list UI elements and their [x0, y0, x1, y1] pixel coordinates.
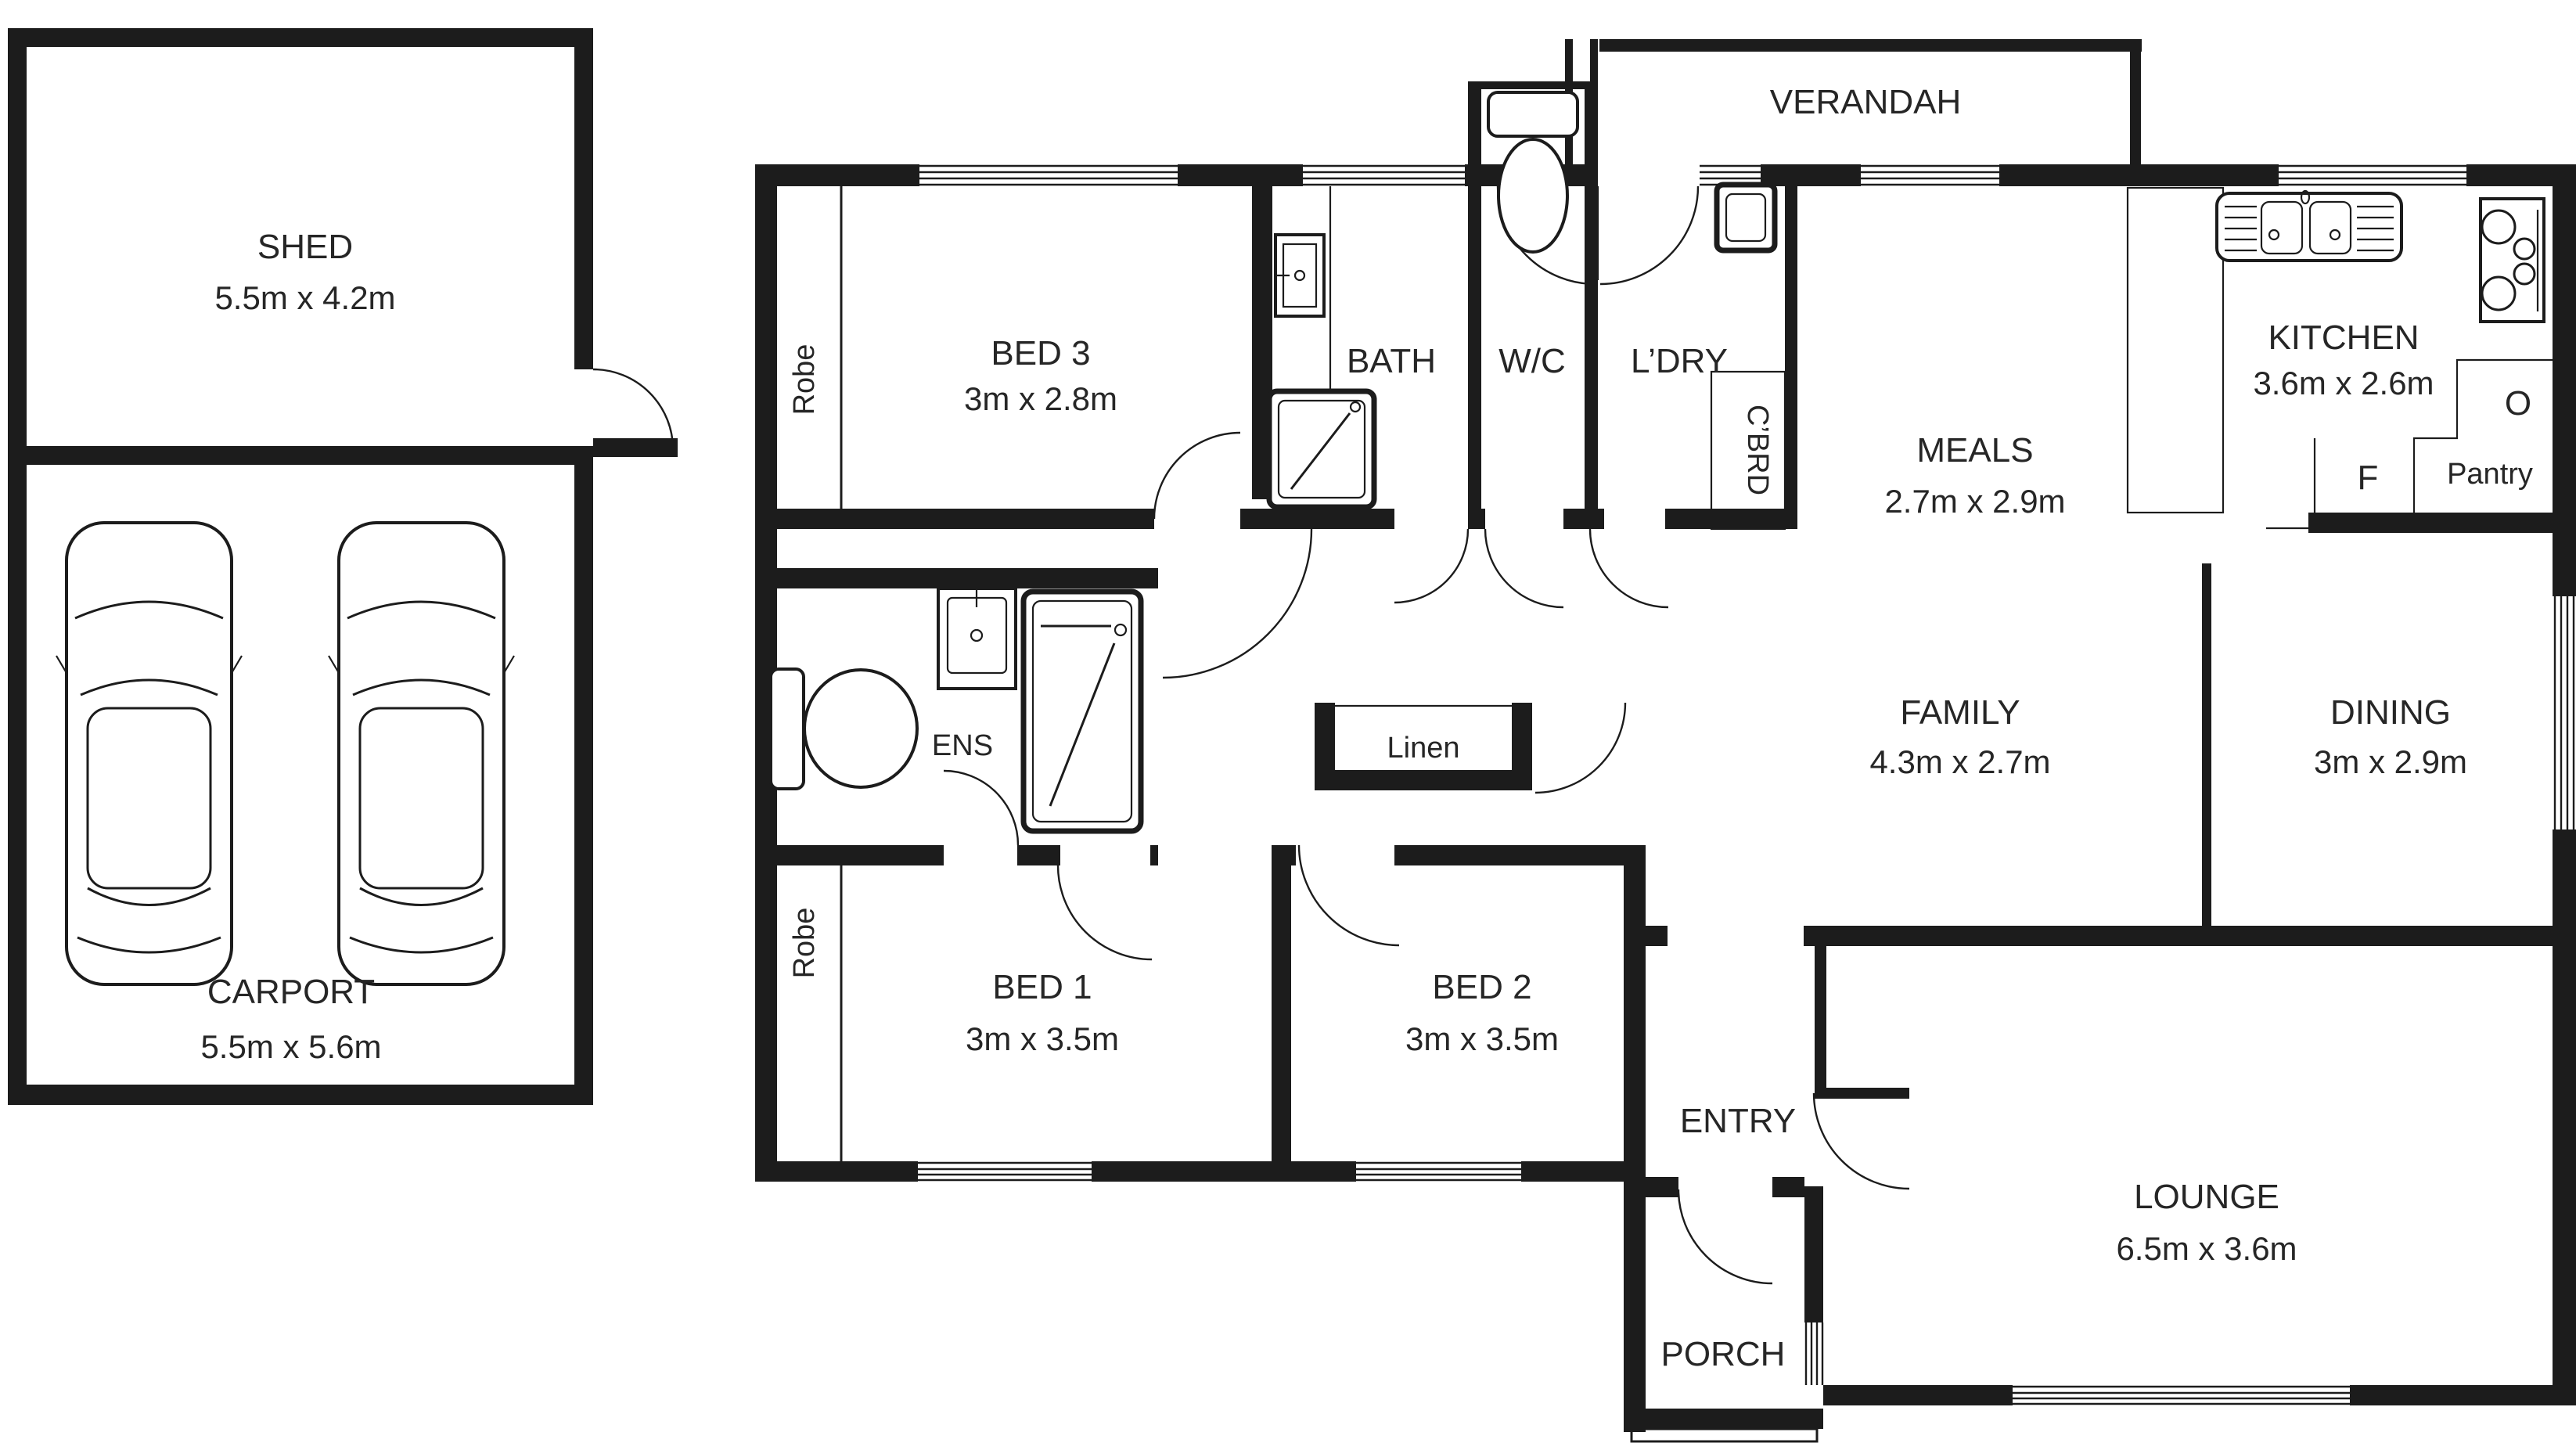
- ens-fixtures: [771, 588, 1141, 831]
- kitchen-fixtures: [2217, 191, 2544, 322]
- room-label-bath: BATH: [1347, 342, 1436, 380]
- room-label-lounge: LOUNGE: [2134, 1178, 2279, 1216]
- room-label-entry: ENTRY: [1680, 1102, 1796, 1140]
- room-dims-lounge: 6.5m x 3.6m: [2116, 1230, 2297, 1267]
- car-1: [56, 523, 242, 984]
- room-dims-shed: 5.5m x 4.2m: [214, 279, 395, 316]
- label-cbrd: C’BRD: [1741, 405, 1774, 495]
- label-fridge: F: [2358, 459, 2379, 497]
- label-robe-bed3: Robe: [788, 344, 821, 416]
- room-label-shed: SHED: [257, 228, 353, 266]
- room-label-family: FAMILY: [1900, 693, 2020, 732]
- room-dims-bed1: 3m x 3.5m: [966, 1020, 1119, 1057]
- label-linen: Linen: [1387, 732, 1460, 765]
- wc-toilet: [1488, 92, 1578, 252]
- car-2: [329, 523, 514, 984]
- room-dims-bed2: 3m x 3.5m: [1405, 1020, 1559, 1057]
- floor-plan-page: SHED 5.5m x 4.2m CARPORT 5.5m x 5.6m BED…: [0, 0, 2576, 1443]
- room-label-carport: CARPORT: [207, 973, 375, 1011]
- room-label-ldry: L’DRY: [1631, 342, 1728, 380]
- room-label-meals: MEALS: [1916, 431, 2033, 470]
- room-label-porch: PORCH: [1661, 1335, 1786, 1373]
- room-label-bed1: BED 1: [992, 968, 1092, 1006]
- room-dims-carport: 5.5m x 5.6m: [200, 1028, 381, 1065]
- room-dims-dining: 3m x 2.9m: [2314, 743, 2467, 780]
- room-label-kitchen: KITCHEN: [2268, 318, 2419, 357]
- room-label-bed2: BED 2: [1432, 968, 1531, 1006]
- label-robe-bed1: Robe: [788, 908, 821, 979]
- room-dims-family: 4.3m x 2.7m: [1869, 743, 2050, 780]
- shed-door-arc: [593, 369, 673, 449]
- room-dims-meals: 2.7m x 2.9m: [1884, 483, 2065, 520]
- room-dims-bed3: 3m x 2.8m: [964, 380, 1117, 417]
- room-label-dining: DINING: [2330, 693, 2451, 732]
- floor-plan: SHED 5.5m x 4.2m CARPORT 5.5m x 5.6m BED…: [0, 0, 2576, 1443]
- room-label-ens: ENS: [932, 729, 993, 762]
- label-pantry: Pantry: [2447, 458, 2533, 491]
- room-label-wc: W/C: [1498, 342, 1566, 380]
- room-label-bed3: BED 3: [991, 334, 1090, 372]
- label-oven: O: [2505, 384, 2531, 423]
- room-label-verandah: VERANDAH: [1770, 83, 1962, 121]
- room-dims-kitchen: 3.6m x 2.6m: [2253, 365, 2434, 401]
